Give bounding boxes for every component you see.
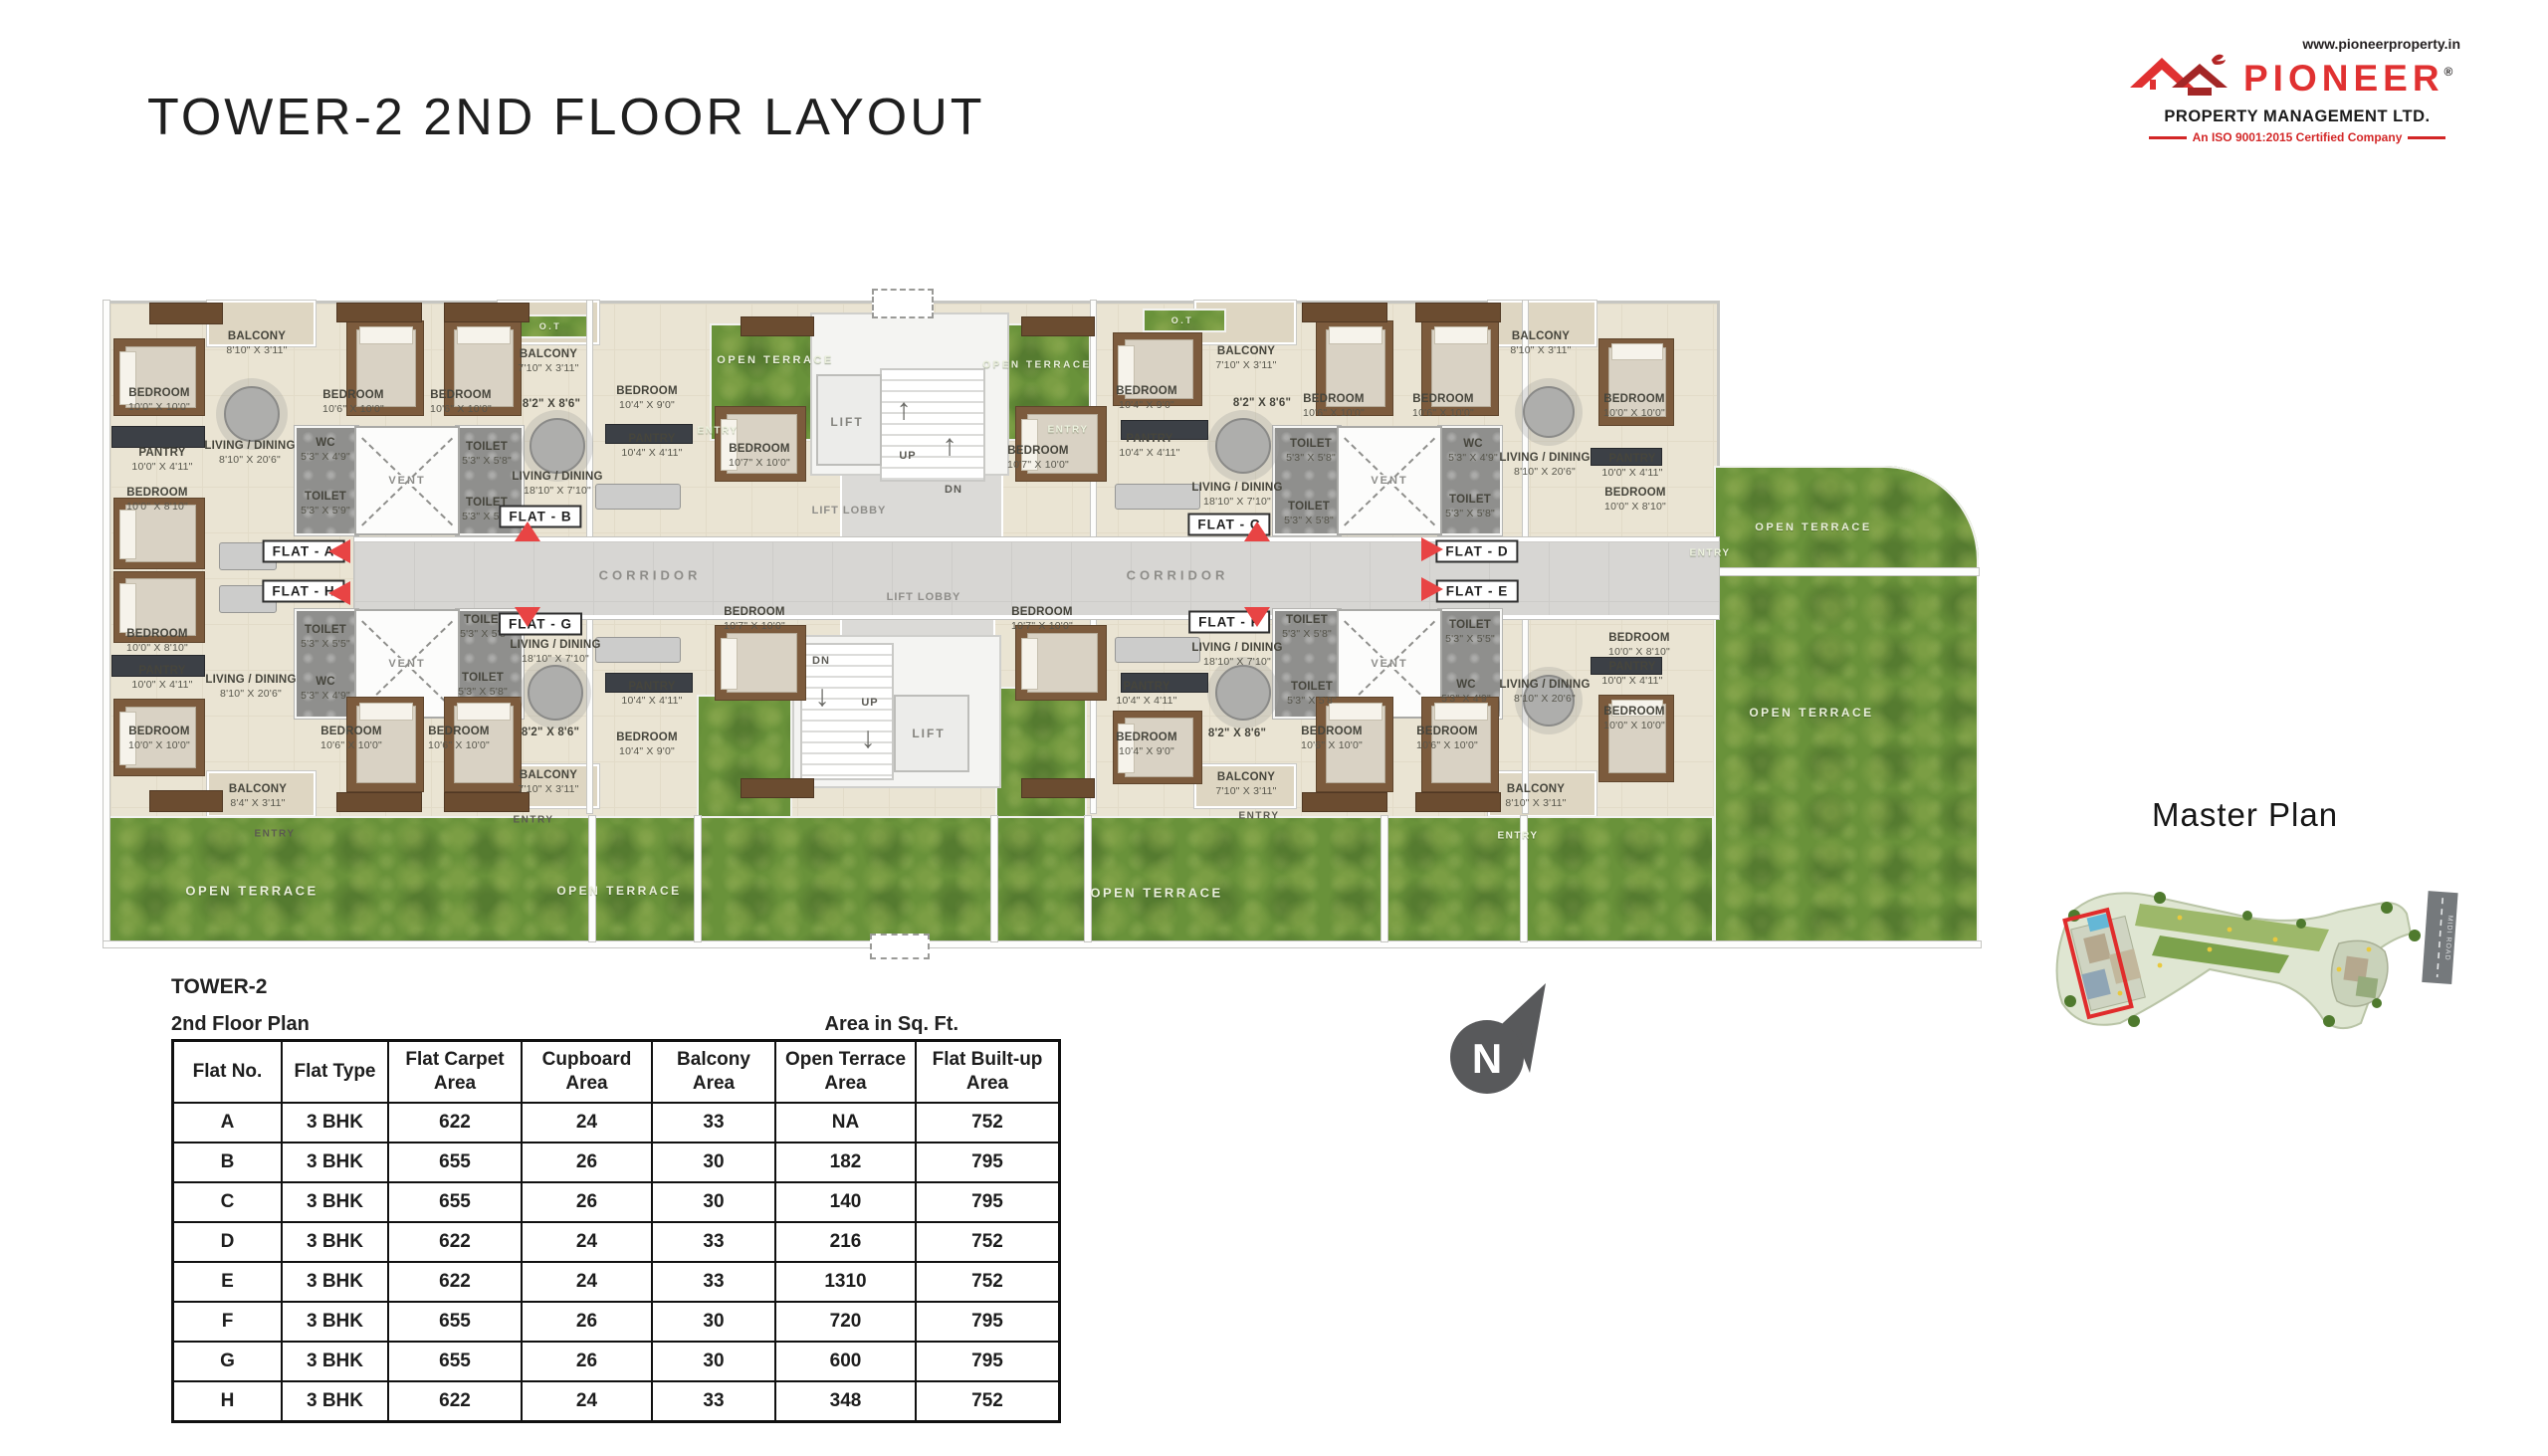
vent-label: VENT: [385, 475, 428, 487]
room-label: 8'2" X 8'6": [522, 727, 579, 740]
table-cell: 30: [652, 1342, 775, 1381]
open-terrace-label: OPEN TERRACE: [1749, 706, 1873, 720]
open-terrace-label: OPEN TERRACE: [1090, 886, 1222, 901]
room-label: TOILET5'3" X 5'8": [1286, 438, 1336, 464]
table-icon: [1215, 665, 1271, 721]
entry-arrow-a: [328, 539, 350, 563]
table-icon: [1523, 386, 1575, 438]
room-label: LIVING / DINING18'10" X 7'10": [1191, 642, 1282, 668]
core-label: DN: [812, 655, 830, 667]
ward-icon: [336, 303, 422, 322]
room-label: BEDROOM10'6" X 10'0": [1303, 393, 1365, 419]
boundary-wall: [104, 301, 109, 945]
room-label: LIVING / DINING18'10" X 7'10": [1191, 482, 1282, 508]
table-cell: 3 BHK: [282, 1143, 388, 1182]
core-vent: [872, 289, 934, 318]
column-header: Flat No.: [173, 1041, 283, 1104]
core-label: CORRIDOR: [1127, 568, 1229, 583]
ward-icon: [336, 792, 422, 812]
room-label: BEDROOM10'6" X 10'0": [322, 389, 384, 415]
room-label: PANTRY10'0" X 4'11": [131, 665, 192, 691]
table-cell: 720: [775, 1302, 916, 1342]
open-terrace-label: OPEN TERRACE: [185, 884, 318, 899]
ward-icon: [444, 303, 530, 322]
table-cell: 795: [916, 1342, 1060, 1381]
room-label: BALCONY7'10" X 3'11": [518, 769, 578, 795]
master-plan-map: MIDI ROAD: [2040, 874, 2488, 1058]
ward-icon: [1021, 316, 1095, 336]
table-cell: 600: [775, 1342, 916, 1381]
ward-icon: [1302, 303, 1387, 322]
flat-area-table: Flat No.Flat TypeFlat Carpet AreaCupboar…: [171, 1039, 1061, 1423]
core-label: LIFT LOBBY: [887, 591, 961, 603]
table-cell: 24: [522, 1381, 652, 1422]
table-cell: F: [173, 1302, 283, 1342]
core-label: DN: [945, 484, 962, 496]
core-label: LIFT: [830, 415, 863, 429]
ward-icon: [741, 778, 814, 798]
counter-icon: [111, 426, 205, 448]
entry-label: ENTRY: [697, 426, 738, 437]
table-cell: 3 BHK: [282, 1103, 388, 1143]
table-cell: 33: [652, 1381, 775, 1422]
table-icon: [528, 665, 583, 721]
table-cell: 216: [775, 1222, 916, 1262]
plan-name: 2nd Floor Plan: [171, 1013, 310, 1036]
room-label: TOILET5'3" X 5'9": [301, 491, 350, 517]
entry-label: ENTRY: [1689, 548, 1730, 559]
column-header: Flat Carpet Area: [388, 1041, 522, 1104]
core-label: ↓: [861, 722, 876, 755]
table-header: Flat No.Flat TypeFlat Carpet AreaCupboar…: [173, 1041, 1060, 1104]
room-label: BALCONY8'10" X 3'11": [226, 330, 287, 356]
room-label: TOILET5'3" X 5'8": [1282, 614, 1332, 640]
room-label: BEDROOM10'0" X 8'10": [126, 487, 188, 513]
room-label: LIVING / DINING8'10" X 20'6": [1499, 679, 1590, 705]
master-plan-title: Master Plan: [2152, 796, 2338, 834]
wall: [1381, 816, 1387, 941]
table-icon: [530, 418, 585, 474]
room-label: PANTRY10'4" X 4'11": [621, 681, 682, 707]
table-cell: 752: [916, 1103, 1060, 1143]
sofa-icon: [595, 484, 681, 510]
core-vent: [870, 934, 930, 959]
sofa-icon: [1115, 484, 1200, 510]
table-cell: 3 BHK: [282, 1381, 388, 1422]
ward-icon: [444, 792, 530, 812]
room-label: BEDROOM10'6" X 10'0": [1412, 393, 1474, 419]
north-compass-icon: N: [1433, 963, 1583, 1113]
bed-h-icon: [1015, 625, 1107, 701]
room-label: 8'2" X 8'6": [1233, 397, 1291, 411]
open-terrace-label: OPEN TERRACE: [982, 360, 1091, 371]
table-cell: 26: [522, 1143, 652, 1182]
core-label: CORRIDOR: [599, 568, 702, 583]
room-label: WC5'3" X 4'9": [1441, 679, 1491, 705]
wall: [587, 301, 592, 537]
table-row: F3 BHK6552630720795: [173, 1302, 1060, 1342]
room-label: LIVING / DINING8'10" X 20'6": [1499, 452, 1590, 478]
room-label: 8'2" X 8'6": [1208, 728, 1266, 741]
flat-tag-d: FLAT - D: [1435, 540, 1518, 563]
table-cell: 752: [916, 1222, 1060, 1262]
ward-icon: [741, 316, 814, 336]
table-cell: 3 BHK: [282, 1182, 388, 1222]
table-icon: [224, 386, 280, 442]
room-label: 8'2" X 8'6": [523, 398, 580, 412]
room-label: BALCONY7'10" X 3'11": [1215, 345, 1276, 371]
vent-label: VENT: [1368, 658, 1410, 670]
table-cell: 655: [388, 1182, 522, 1222]
room-label: BEDROOM10'4" X 9'0": [616, 731, 677, 757]
open-terrace-right-ext: [1525, 816, 1714, 943]
core-label: ↑: [897, 393, 912, 427]
table-cell: 795: [916, 1302, 1060, 1342]
table-cell: 33: [652, 1222, 775, 1262]
entry-arrow-f: [1244, 607, 1270, 627]
table-cell: C: [173, 1182, 283, 1222]
room-label: BEDROOM10'4" X 9'0": [616, 385, 677, 411]
open-terrace-label: OPEN TERRACE: [556, 884, 681, 898]
room-label: LIVING / DINING18'10" X 7'10": [510, 639, 600, 665]
table-cell: 752: [916, 1262, 1060, 1302]
room-label: PANTRY10'4" X 4'11": [1116, 681, 1176, 707]
room-label: BEDROOM10'7" X 10'0": [1007, 445, 1069, 471]
room-label: TOILET5'3" X 5'8": [1287, 681, 1337, 707]
entry-arrow-h: [328, 581, 350, 605]
column-header: Cupboard Area: [522, 1041, 652, 1104]
wall: [1085, 816, 1091, 941]
table-cell: 26: [522, 1302, 652, 1342]
ward-icon: [149, 303, 223, 324]
room-label: BEDROOM10'4" X 9'0": [1116, 731, 1176, 757]
room-label: PANTRY10'0" X 4'11": [131, 447, 192, 473]
room-label: BALCONY8'10" X 3'11": [1510, 330, 1571, 356]
entry-arrow-g: [515, 607, 540, 627]
compass-n-label: N: [1472, 1035, 1502, 1082]
room-label: BEDROOM10'7" X 10'0": [1011, 606, 1073, 632]
table-cell: 24: [522, 1262, 652, 1302]
table-cell: 33: [652, 1262, 775, 1302]
wall: [695, 816, 701, 941]
flat-tag-e: FLAT - E: [1436, 580, 1519, 603]
table-cell: NA: [775, 1103, 916, 1143]
open-terrace-label: O.T: [539, 321, 562, 331]
wall: [991, 816, 997, 941]
table-cell: A: [173, 1103, 283, 1143]
table-cell: 348: [775, 1381, 916, 1422]
vent-shaft: VENT: [354, 426, 460, 535]
table-row: G3 BHK6552630600795: [173, 1342, 1060, 1381]
ward-icon: [1415, 303, 1501, 322]
table-cell: 3 BHK: [282, 1222, 388, 1262]
room-label: BALCONY8'4" X 3'11": [229, 783, 287, 809]
table-cell: 30: [652, 1302, 775, 1342]
table-cell: 26: [522, 1342, 652, 1381]
room-label: PANTRY10'4" X 4'11": [621, 433, 682, 459]
table-cell: 182: [775, 1143, 916, 1182]
entry-label: ENTRY: [1497, 831, 1538, 842]
column-header: Flat Built-up Area: [916, 1041, 1060, 1104]
table-building-title: TOWER-2: [171, 975, 267, 999]
open-terrace-label: OPEN TERRACE: [717, 354, 833, 366]
entry-arrow-d: [1421, 537, 1443, 561]
room-label: WC5'3" X 4'9": [301, 676, 350, 702]
room-label: TOILET5'3" X 5'8": [462, 441, 512, 467]
room-label: BEDROOM10'0" X 8'10": [1608, 632, 1670, 658]
table-row: A3 BHK6222433NA752: [173, 1103, 1060, 1143]
entry-arrow-e: [1421, 577, 1443, 601]
table-cell: B: [173, 1143, 283, 1182]
entry-label: ENTRY: [513, 815, 553, 826]
room-label: BEDROOM10'6" X 10'0": [430, 389, 492, 415]
table-cell: 795: [916, 1182, 1060, 1222]
room-label: BEDROOM10'7" X 10'0": [724, 606, 785, 632]
room-label: BEDROOM10'0" X 10'0": [128, 387, 190, 413]
entry-label: ENTRY: [1238, 811, 1279, 822]
room-label: LIVING / DINING8'10" X 20'6": [204, 440, 295, 466]
room-label: BEDROOM10'6" X 10'0": [320, 726, 382, 751]
room-label: BEDROOM10'6" X 10'0": [1416, 726, 1478, 751]
table-cell: G: [173, 1342, 283, 1381]
table-cell: 655: [388, 1342, 522, 1381]
core-label: ↑: [943, 429, 957, 463]
room-label: TOILET5'3" X 5'8": [458, 672, 508, 698]
table-row: H3 BHK6222433348752: [173, 1381, 1060, 1422]
vent-label: VENT: [1368, 475, 1410, 487]
table-cell: 24: [522, 1222, 652, 1262]
room-label: BEDROOM10'6" X 10'0": [1301, 726, 1363, 751]
room-label: BEDROOM10'0" X 8'10": [1604, 487, 1666, 513]
table-cell: 3 BHK: [282, 1302, 388, 1342]
room-label: TOILET5'3" X 5'8": [1284, 501, 1334, 526]
room-label: BEDROOM10'0" X 10'0": [1603, 706, 1665, 731]
room-label: BEDROOM10'0" X 8'10": [126, 628, 188, 654]
room-label: TOILET5'3" X 5'5": [301, 624, 350, 650]
table-cell: 655: [388, 1302, 522, 1342]
table-cell: 140: [775, 1182, 916, 1222]
ward-icon: [1021, 778, 1095, 798]
table-cell: H: [173, 1381, 283, 1422]
table-body: A3 BHK6222433NA752B3 BHK6552630182795C3 …: [173, 1103, 1060, 1422]
flat-tag-b: FLAT - B: [499, 506, 581, 528]
table-cell: E: [173, 1262, 283, 1302]
ward-icon: [149, 790, 223, 812]
table-cell: 30: [652, 1143, 775, 1182]
room-label: BALCONY7'10" X 3'11": [518, 348, 578, 374]
table-cell: 24: [522, 1103, 652, 1143]
entry-label: ENTRY: [254, 829, 295, 840]
table-icon: [1215, 418, 1271, 474]
room-label: BALCONY8'10" X 3'11": [1505, 783, 1566, 809]
room-label: BEDROOM10'0" X 10'0": [128, 726, 190, 751]
terrace-wall: [1717, 568, 1979, 575]
column-header: Flat Type: [282, 1041, 388, 1104]
column-header: Open Terrace Area: [775, 1041, 916, 1104]
vent-label: VENT: [385, 658, 428, 670]
room-label: PANTRY10'0" X 4'11": [1601, 453, 1662, 479]
table-cell: 752: [916, 1381, 1060, 1422]
ward-icon: [1302, 792, 1387, 812]
room-label: TOILET5'3" X 5'5": [1445, 619, 1495, 645]
room-label: WC5'3" X 4'9": [301, 437, 350, 463]
table-cell: D: [173, 1222, 283, 1262]
open-terrace-band: [107, 816, 1525, 943]
room-label: LIVING / DINING18'10" X 7'10": [512, 471, 602, 497]
table-cell: 622: [388, 1381, 522, 1422]
table-cell: 622: [388, 1222, 522, 1262]
table-cell: 622: [388, 1262, 522, 1302]
room-label: WC5'3" X 4'9": [1448, 438, 1498, 464]
unit-note: Area in Sq. Ft.: [825, 1013, 958, 1036]
room-label: PANTRY10'4" X 4'11": [1119, 433, 1179, 459]
table-row: B3 BHK6552630182795: [173, 1143, 1060, 1182]
table-cell: 3 BHK: [282, 1342, 388, 1381]
table-row: C3 BHK6552630140795: [173, 1182, 1060, 1222]
table-cell: 30: [652, 1182, 775, 1222]
table-cell: 3 BHK: [282, 1262, 388, 1302]
table-caption: 2nd Floor Plan Area in Sq. Ft.: [171, 1013, 958, 1036]
core-label: LIFT LOBBY: [812, 505, 887, 517]
wall: [589, 816, 595, 941]
open-terrace-column: [995, 687, 1087, 818]
room-label: BALCONY7'10" X 3'11": [1215, 771, 1276, 797]
entry-label: ENTRY: [1047, 425, 1088, 436]
room-label: TOILET5'3" X 5'8": [1445, 494, 1495, 520]
vent-shaft: VENT: [1337, 426, 1442, 535]
table-cell: 1310: [775, 1262, 916, 1302]
open-terrace-label: OPEN TERRACE: [1755, 521, 1871, 533]
boundary-wall: [104, 941, 1981, 947]
table-row: E3 BHK62224331310752: [173, 1262, 1060, 1302]
sofa-icon: [1115, 637, 1200, 663]
core-label: UP: [899, 450, 916, 462]
bed-h-icon: [715, 625, 806, 701]
table-row: D3 BHK6222433216752: [173, 1222, 1060, 1262]
core-label: ↓: [815, 680, 830, 714]
table-cell: 622: [388, 1103, 522, 1143]
flat-tag-g: FLAT - G: [499, 613, 582, 636]
room-label: BEDROOM10'7" X 10'0": [729, 443, 790, 469]
entry-arrow-b: [515, 521, 540, 541]
room-label: LIVING / DINING8'10" X 20'6": [205, 674, 296, 700]
table-cell: 655: [388, 1143, 522, 1182]
room-label: BEDROOM10'4" X 9'0": [1116, 385, 1176, 411]
open-terrace-column: [697, 695, 792, 818]
column-header: Balcony Area: [652, 1041, 775, 1104]
table-cell: 26: [522, 1182, 652, 1222]
table-cell: 795: [916, 1143, 1060, 1182]
open-terrace-label: O.T: [1171, 315, 1194, 325]
room-label: BEDROOM10'6" X 10'0": [428, 726, 490, 751]
room-label: BEDROOM10'0" X 10'0": [1603, 393, 1665, 419]
core-label: UP: [861, 697, 878, 709]
ward-icon: [1415, 792, 1501, 812]
room-label: PANTRY10'0" X 4'11": [1601, 661, 1662, 687]
sofa-icon: [595, 637, 681, 663]
table-cell: 33: [652, 1103, 775, 1143]
core-label: LIFT: [912, 727, 945, 740]
entry-arrow-c: [1244, 521, 1270, 541]
